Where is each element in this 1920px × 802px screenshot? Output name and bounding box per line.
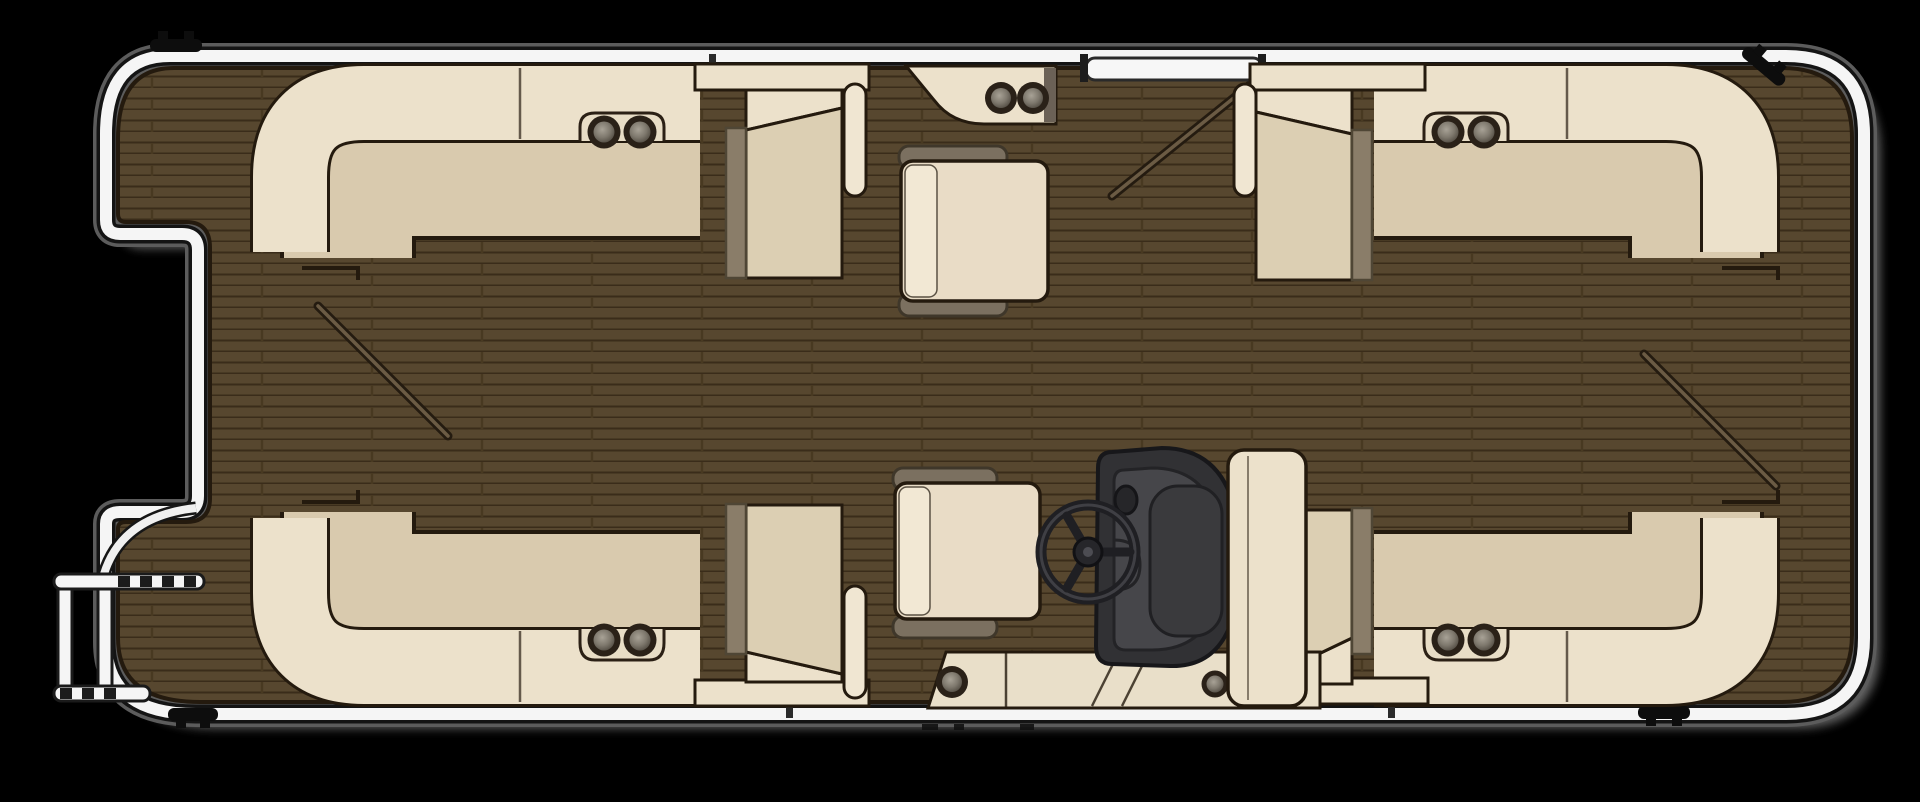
chaise-accent-strip [726, 504, 746, 654]
cup-holder-inner [1023, 88, 1043, 108]
cup-holder-inner [1474, 122, 1495, 143]
cup-holder-inner [630, 122, 651, 143]
table-top-leaf [899, 487, 930, 615]
console-dash [1150, 486, 1222, 636]
ladder-rail-right [98, 589, 112, 689]
cup-holder-inner [991, 88, 1011, 108]
chaise-cushion [746, 108, 842, 278]
wheel-hub-cap [1083, 547, 1093, 557]
chaise-cushion [1256, 112, 1352, 280]
chaise-accent-strip [726, 128, 746, 278]
cup-holder-inner [594, 122, 615, 143]
chaise-top-bar [695, 64, 869, 90]
table-top-leaf [905, 165, 937, 297]
cup-holder-inner [630, 630, 651, 651]
captains-chair [1228, 450, 1306, 706]
chaise-cushion [746, 505, 842, 674]
cup-holder-inner [1438, 122, 1459, 143]
cup-holder-inner [594, 630, 615, 651]
floorplan-canvas [0, 0, 1920, 802]
armrest [1234, 84, 1256, 196]
cup-holder-inner [942, 672, 962, 692]
bow-table [899, 146, 1048, 316]
helm-console [1096, 448, 1240, 666]
chair-body [1228, 450, 1306, 706]
chaise-cushion [1306, 510, 1352, 660]
gate-post-left [1080, 54, 1088, 82]
cup-holder-inner [1438, 630, 1459, 651]
port-gate-bar [1086, 58, 1262, 80]
armrest [844, 84, 866, 196]
cup-holder-inner [1207, 676, 1224, 693]
cup-holder-inner [1474, 630, 1495, 651]
ladder-rungs-bottom [60, 688, 116, 699]
chaise-top-bar [1250, 64, 1425, 90]
aft-table [893, 468, 1040, 638]
chaise-accent-strip [1352, 130, 1372, 280]
ladder-rail-left [58, 589, 72, 689]
armrest [844, 586, 866, 698]
chaise-accent-strip [1352, 508, 1372, 654]
